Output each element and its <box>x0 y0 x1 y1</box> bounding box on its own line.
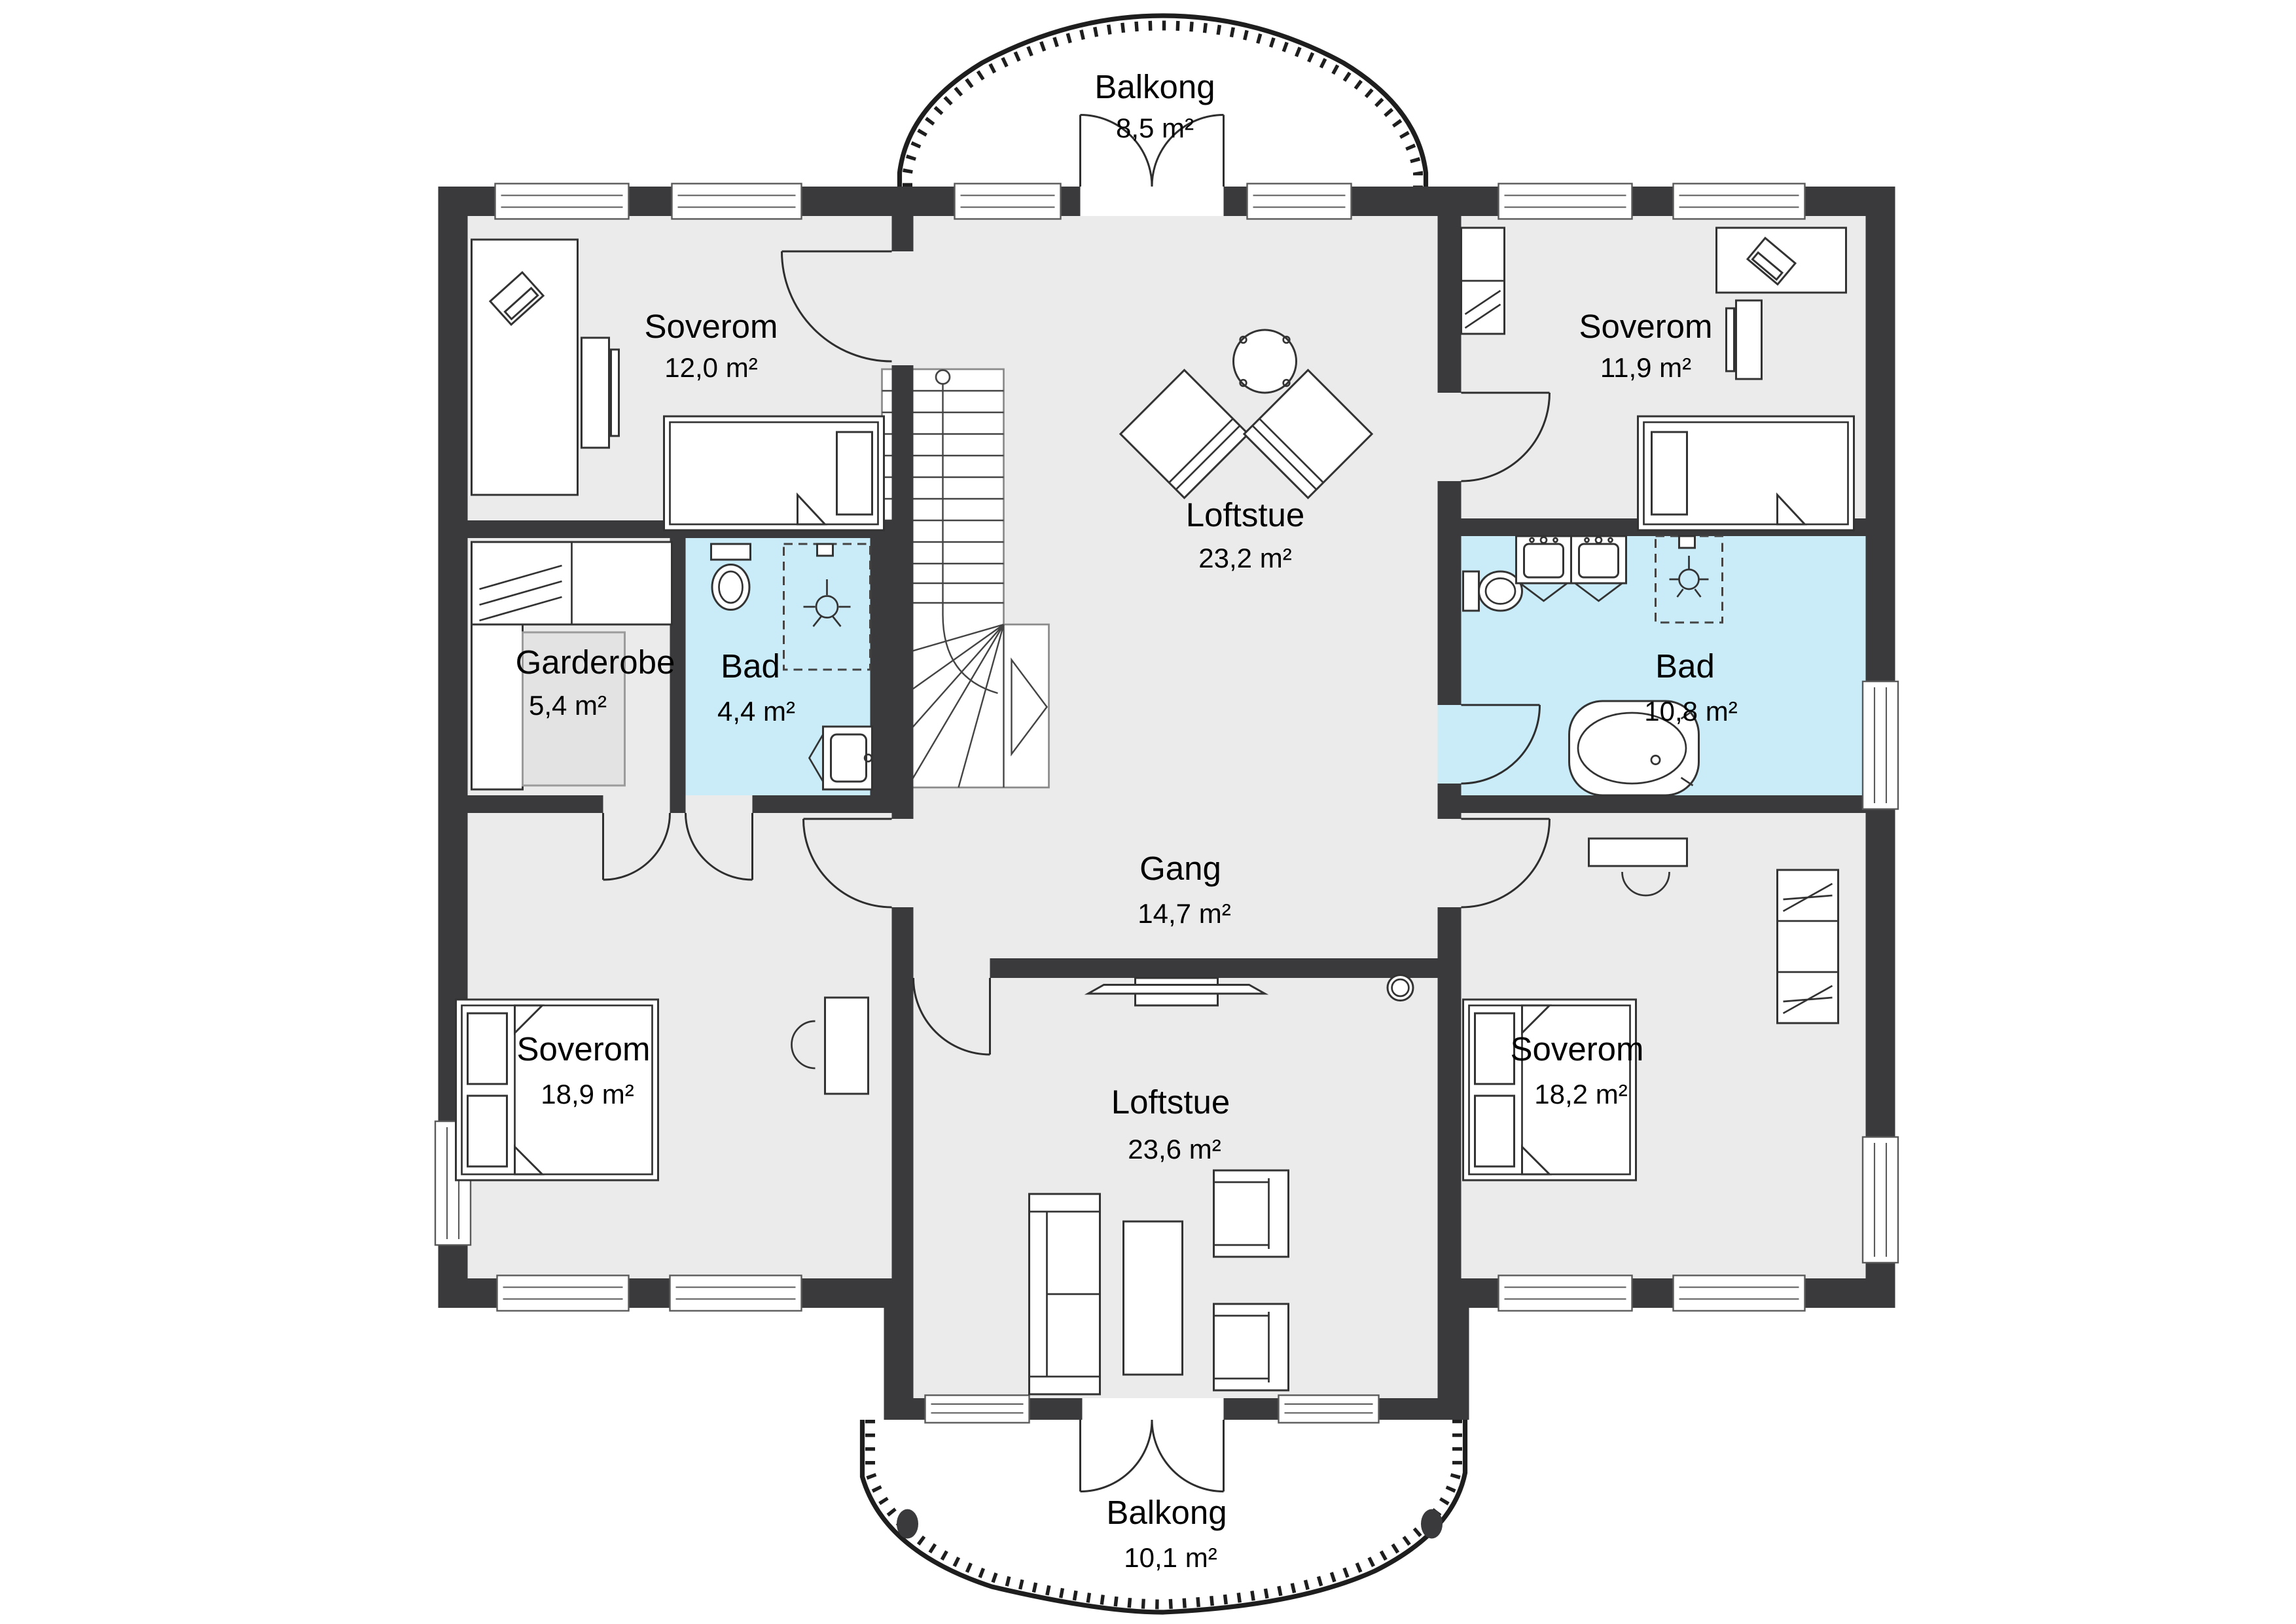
room-area: 14,7 m² <box>1138 898 1230 929</box>
room-area: 23,2 m² <box>1198 543 1291 573</box>
window <box>1499 1276 1632 1311</box>
wardrobe <box>1778 870 1839 1023</box>
room-area: 18,2 m² <box>1534 1079 1627 1110</box>
window <box>1863 1137 1898 1263</box>
pillow <box>468 1096 507 1166</box>
toilet <box>711 544 751 610</box>
room-label: Bad <box>721 647 780 685</box>
single-bed <box>664 416 884 530</box>
room-area: 10,8 m² <box>1644 696 1737 727</box>
chair-back <box>611 350 619 436</box>
pillow <box>837 432 872 514</box>
stair-newel <box>936 370 950 384</box>
room-area: 8,5 m² <box>1116 113 1194 143</box>
pillow <box>1475 1096 1515 1166</box>
window <box>495 184 629 219</box>
room-label: Soverom <box>1510 1030 1643 1068</box>
office-chair <box>582 338 609 448</box>
toilet <box>1463 571 1522 611</box>
window <box>925 1396 1030 1423</box>
room-area: 23,6 m² <box>1128 1134 1221 1164</box>
armchair <box>1214 1304 1289 1390</box>
room-label: Soverom <box>644 308 778 345</box>
window <box>1279 1396 1379 1423</box>
room-area: 11,9 m² <box>1600 352 1691 383</box>
single-bed <box>1638 416 1854 530</box>
balcony-post <box>897 1509 918 1539</box>
room-label: Balkong <box>1094 68 1215 105</box>
pillow <box>1652 432 1687 514</box>
room-label: Loftstue <box>1186 496 1304 533</box>
window <box>955 184 1061 219</box>
room-label: Balkong <box>1106 1494 1227 1531</box>
wardrobe <box>1462 228 1505 334</box>
room-area: 5,4 m² <box>529 690 607 721</box>
pillow <box>468 1013 507 1084</box>
window <box>1674 184 1805 219</box>
coffee-table <box>1124 1221 1183 1375</box>
floor-plan: Balkong 8,5 m² Soverom 12,0 m² Soverom 1… <box>0 0 2296 1624</box>
balcony-post <box>1421 1509 1443 1539</box>
desk <box>825 998 869 1094</box>
sofa <box>1030 1194 1100 1394</box>
room-area: 18,9 m² <box>541 1079 634 1110</box>
office-chair <box>1736 300 1762 379</box>
room-label: Soverom <box>1579 308 1712 345</box>
room-label: Gang <box>1139 850 1221 887</box>
window <box>1247 184 1352 219</box>
window <box>672 184 802 219</box>
room-label: Bad <box>1655 647 1715 685</box>
room-label: Garderobe <box>516 643 675 681</box>
chair-back <box>1727 308 1734 371</box>
window <box>1863 681 1898 809</box>
room-label: Soverom <box>516 1030 650 1068</box>
room-label: Loftstue <box>1111 1083 1230 1121</box>
tv <box>1088 985 1265 994</box>
window <box>670 1276 802 1311</box>
window <box>1674 1276 1805 1311</box>
room-area: 4,4 m² <box>717 696 795 727</box>
room-area: 12,0 m² <box>664 352 757 383</box>
armchair <box>1214 1170 1289 1257</box>
round-table <box>1234 330 1297 393</box>
window <box>497 1276 629 1311</box>
pillow <box>1475 1013 1515 1084</box>
closet <box>472 542 672 624</box>
room-area: 10,1 m² <box>1124 1542 1217 1573</box>
desk <box>1589 839 1687 866</box>
window <box>1499 184 1632 219</box>
